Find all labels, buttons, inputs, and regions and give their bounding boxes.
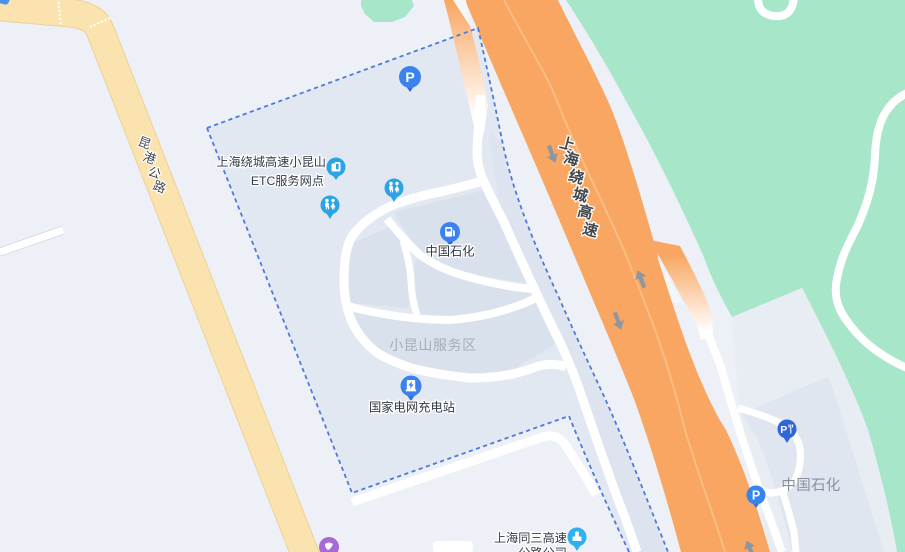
svg-text:上海同三高速: 上海同三高速 xyxy=(494,530,567,545)
svg-text:P: P xyxy=(752,489,760,503)
svg-text:中国石化: 中国石化 xyxy=(781,477,840,494)
svg-text:上海绕城高速小昆山: 上海绕城高速小昆山 xyxy=(216,154,326,169)
svg-text:国家电网充电站: 国家电网充电站 xyxy=(369,400,455,415)
svg-text:ETC服务网点: ETC服务网点 xyxy=(251,173,324,188)
svg-text:小昆山服务区: 小昆山服务区 xyxy=(389,337,477,353)
svg-text:公路公司: 公路公司 xyxy=(518,545,567,552)
svg-text:P: P xyxy=(780,424,787,436)
svg-text:P: P xyxy=(405,69,414,85)
svg-text:中国石化: 中国石化 xyxy=(425,244,474,259)
